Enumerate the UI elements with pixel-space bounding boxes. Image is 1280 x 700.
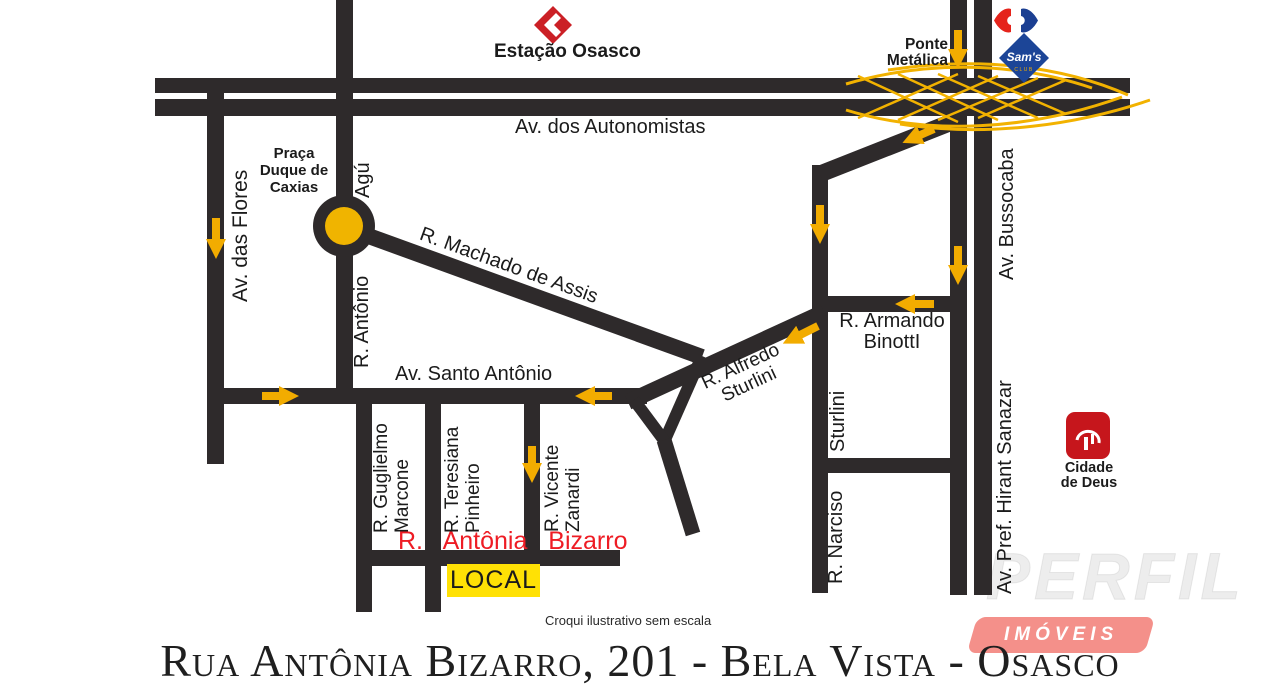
svg-text:CLUB: CLUB bbox=[1014, 67, 1033, 73]
street-label-vicente: R. Vicente Zanardi bbox=[543, 410, 584, 532]
street-label-hirant-sanazar: Av. Pref. Hirant Sanazar bbox=[995, 332, 1017, 594]
street-label-sturlini: Sturlini bbox=[828, 370, 850, 452]
street-label-agu: Agú bbox=[353, 140, 375, 198]
street-label-antonia-bizarro: R. Antônia Bizarro bbox=[398, 527, 628, 556]
road-r-machado-de-assis bbox=[352, 230, 702, 357]
street-label-bussocaba: Av. Bussocaba bbox=[997, 118, 1019, 280]
road-av-dos-autonomistas-north bbox=[155, 78, 1130, 93]
road-junction-edge bbox=[634, 400, 666, 443]
street-label-antonio: R. Antônio bbox=[352, 250, 374, 368]
street-label-teresiana: R. Teresiana Pinheiro bbox=[443, 395, 484, 533]
cidade-de-deus-label: Cidade de Deus bbox=[1056, 461, 1122, 491]
road-av-bussocaba bbox=[974, 110, 992, 595]
street-label-armando-binotti: R. Armando BinottI bbox=[826, 311, 958, 353]
praca-duque-de-caxias-label: Praça Duque de Caxias bbox=[252, 146, 336, 196]
street-label-autonomistas: Av. dos Autonomistas bbox=[515, 117, 705, 138]
estacao-osasco-logo-icon bbox=[534, 6, 572, 44]
roundabout-center bbox=[325, 207, 363, 245]
road-r-guglielmo-marcone bbox=[356, 396, 372, 612]
ponte-metalica-label: Ponte Metálica bbox=[866, 37, 948, 70]
map-canvas: PERFIL bbox=[0, 0, 1280, 700]
street-label-santo-antonio: Av. Santo Antônio bbox=[395, 364, 552, 385]
road-r-teresiana-pinheiro bbox=[425, 396, 441, 612]
croqui-note: Croqui ilustrativo sem escala bbox=[545, 613, 711, 628]
road-south-branch bbox=[664, 440, 693, 534]
address-headline: Rua Antônia Bizarro, 201 - Bela Vista - … bbox=[0, 634, 1280, 687]
road-cross-street bbox=[818, 458, 962, 473]
carrefour-logo-icon bbox=[994, 8, 1038, 32]
cidade-de-deus-logo-icon bbox=[1066, 412, 1110, 459]
street-label-flores: Av. das Flores bbox=[230, 140, 253, 302]
estacao-osasco-label: Estação Osasco bbox=[494, 42, 641, 62]
svg-text:Sam's: Sam's bbox=[1007, 50, 1042, 64]
street-label-narciso: R. Narciso bbox=[826, 472, 848, 584]
street-label-guglielmo: R. Guglielmo Marcone bbox=[372, 395, 413, 533]
local-marker: LOCAL bbox=[447, 564, 540, 597]
map-roads-layer: Sam's CLUB bbox=[0, 0, 1280, 700]
road-av-das-flores bbox=[207, 78, 224, 464]
